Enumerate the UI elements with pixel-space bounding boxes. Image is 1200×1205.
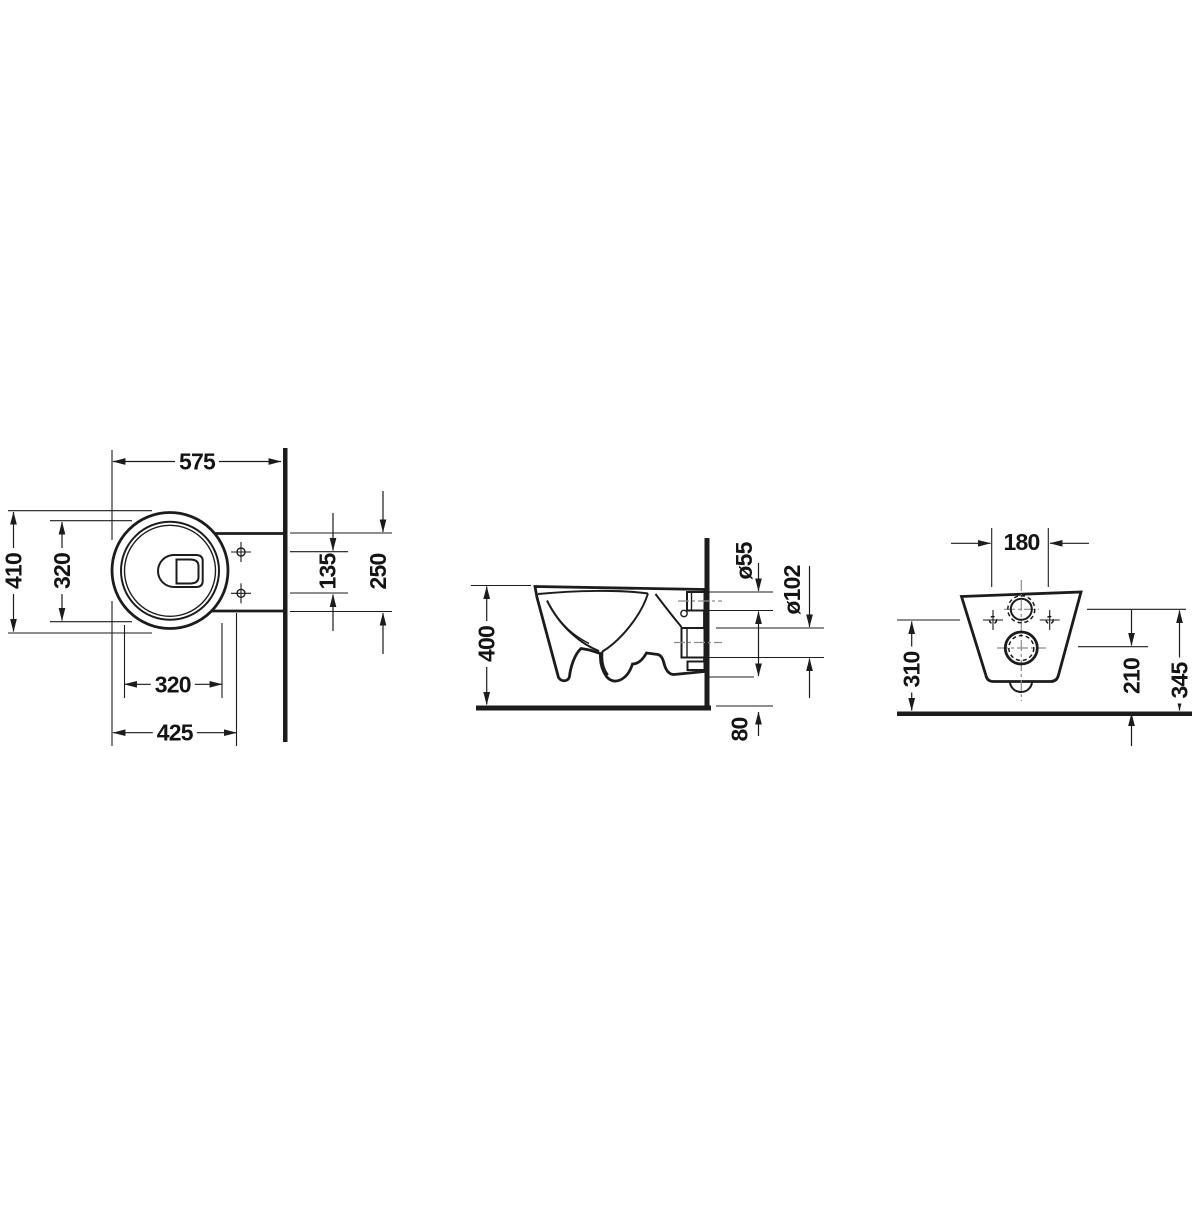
bowl-outer-outline	[112, 513, 228, 629]
dim-80: 80	[727, 718, 753, 742]
dim-410: 410	[1, 553, 27, 589]
dim-180: 180	[1004, 529, 1040, 555]
rear-view: 180 310 210 345	[897, 528, 1193, 746]
dim-210: 210	[1119, 658, 1145, 694]
floor-line-side-view	[476, 706, 711, 711]
bowl-rim-outer	[121, 522, 219, 620]
drain-hole	[177, 560, 199, 584]
dim-345: 345	[1167, 662, 1193, 699]
dim-320-width: 320	[49, 553, 75, 589]
technical-drawing-page: 575 410 320 135 250 320 425	[0, 0, 1200, 1200]
fixing-hole-bottom	[231, 583, 251, 603]
toilet-dimension-drawing: 575 410 320 135 250 320 425	[0, 0, 1200, 1200]
dim-dia102: ø102	[779, 565, 805, 614]
dim-320-length: 320	[155, 671, 191, 697]
floor-line-rear-view	[897, 712, 1192, 717]
side-view: 400 ø55 ø102 80	[471, 538, 824, 741]
dim-250: 250	[365, 554, 391, 590]
wall-section-top-view	[283, 448, 288, 742]
dim-310: 310	[899, 652, 925, 688]
dim-dia55: ø55	[731, 541, 757, 579]
dim-425: 425	[157, 720, 194, 746]
dim-135: 135	[315, 553, 341, 590]
fixing-hole-top	[231, 542, 251, 562]
dim-575: 575	[179, 449, 216, 475]
top-view: 575 410 320 135 250 320 425	[1, 448, 393, 746]
lower-bracket	[688, 662, 705, 671]
wall-section-side-view	[705, 538, 710, 711]
dim-400: 400	[474, 626, 500, 662]
